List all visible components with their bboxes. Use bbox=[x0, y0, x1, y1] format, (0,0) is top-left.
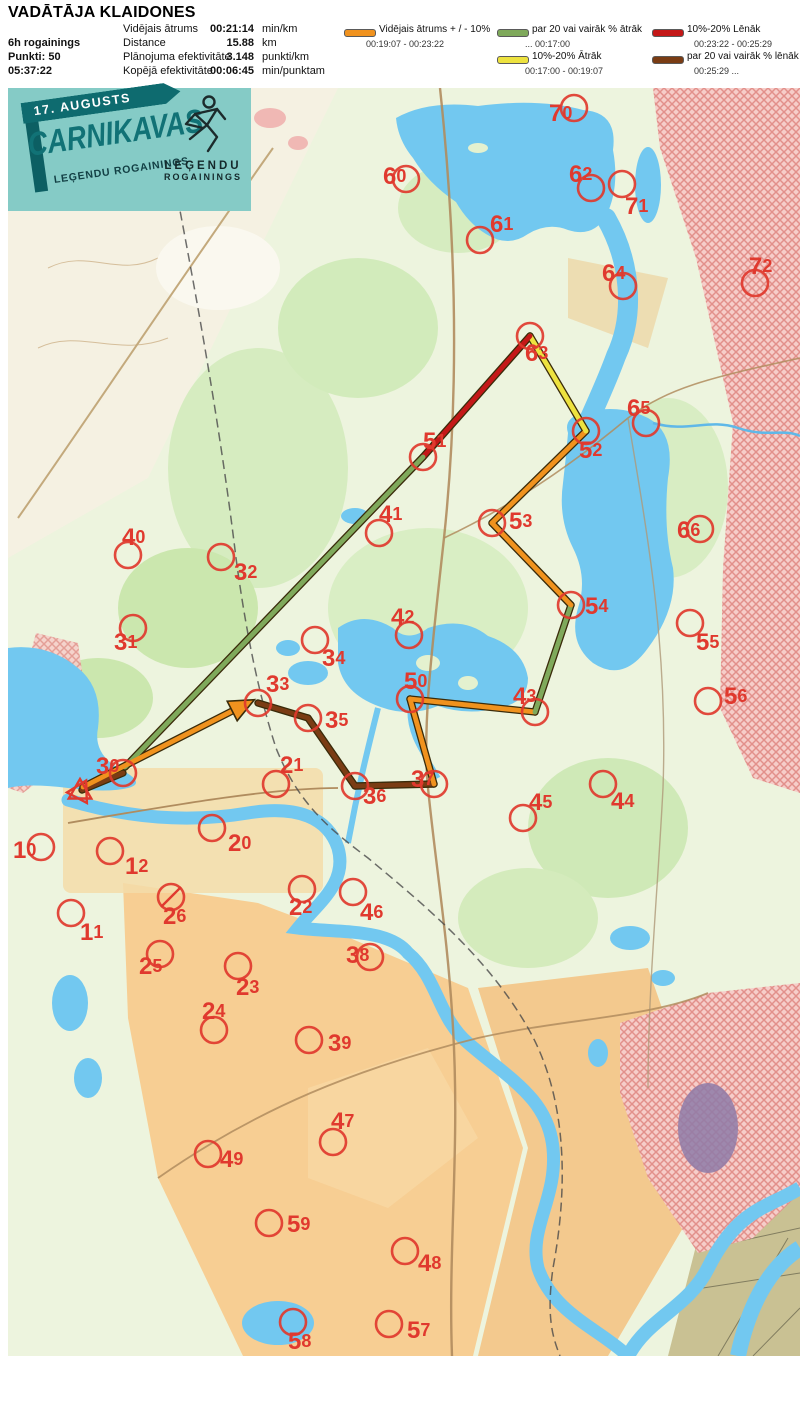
legend-swatch-fast10 bbox=[497, 56, 529, 64]
control-number-42: 42 bbox=[391, 604, 414, 631]
control-number-66: 66 bbox=[677, 517, 700, 544]
stat-unit-distance: km bbox=[262, 37, 342, 49]
control-number-23: 23 bbox=[236, 974, 259, 1001]
control-number-33: 33 bbox=[266, 671, 289, 698]
stat-value-plan-eff: 3.148 bbox=[186, 51, 254, 63]
control-number-20: 20 bbox=[228, 830, 251, 857]
stat-unit-total-eff: min/punktam bbox=[262, 65, 342, 77]
logo-emblem: LEĢENDU ROGAININGS bbox=[160, 94, 246, 182]
control-number-53: 53 bbox=[509, 508, 532, 535]
control-number-72: 72 bbox=[749, 253, 772, 280]
control-number-46: 46 bbox=[360, 899, 383, 926]
emblem-text-2: ROGAININGS bbox=[160, 172, 246, 182]
page: VADĀTĀJA KLAIDONES 6h rogainings Punkti:… bbox=[0, 0, 808, 1414]
total-time: 05:37:22 bbox=[8, 65, 118, 77]
legend-swatch-average bbox=[344, 29, 376, 37]
control-number-70: 70 bbox=[549, 100, 572, 127]
control-number-38: 38 bbox=[346, 942, 369, 969]
topographic-map: 1011122021222324252630313233343536373839… bbox=[8, 88, 800, 1356]
control-number-63: 63 bbox=[525, 340, 548, 367]
stat-value-total-eff: 00:06:45 bbox=[186, 65, 254, 77]
control-number-30: 30 bbox=[96, 753, 119, 780]
control-number-48: 48 bbox=[418, 1250, 441, 1277]
control-number-62: 62 bbox=[569, 161, 592, 188]
control-number-51: 51 bbox=[423, 428, 446, 455]
legend-swatch-slow10 bbox=[652, 29, 684, 37]
control-number-24: 24 bbox=[202, 998, 225, 1025]
control-number-55: 55 bbox=[696, 629, 719, 656]
emblem-text-1: LEĢENDU bbox=[160, 160, 246, 172]
control-number-54: 54 bbox=[585, 593, 608, 620]
control-number-65: 65 bbox=[627, 395, 650, 422]
stat-value-speed: 00:21:14 bbox=[186, 23, 254, 35]
control-number-71: 71 bbox=[625, 193, 648, 220]
control-number-44: 44 bbox=[611, 788, 634, 815]
control-number-50: 50 bbox=[404, 668, 427, 695]
control-number-57: 57 bbox=[407, 1317, 430, 1344]
control-number-10: 10 bbox=[13, 837, 36, 864]
control-number-12: 12 bbox=[125, 853, 148, 880]
runner-icon bbox=[167, 94, 239, 154]
points-total: Punkti: 50 bbox=[8, 51, 118, 63]
event-format: 6h rogainings bbox=[8, 37, 118, 49]
control-number-35: 35 bbox=[325, 707, 348, 734]
control-number-47: 47 bbox=[331, 1108, 354, 1135]
stat-value-distance: 15.88 bbox=[186, 37, 254, 49]
page-title: VADĀTĀJA KLAIDONES bbox=[8, 4, 196, 22]
control-number-40: 40 bbox=[122, 524, 145, 551]
stat-unit-plan-eff: punkti/km bbox=[262, 51, 342, 63]
control-number-61: 61 bbox=[490, 211, 513, 238]
control-number-49: 49 bbox=[220, 1146, 243, 1173]
control-number-41: 41 bbox=[379, 501, 402, 528]
control-number-45: 45 bbox=[529, 789, 552, 816]
control-number-26: 26 bbox=[163, 903, 186, 930]
control-number-58: 58 bbox=[288, 1328, 311, 1355]
control-number-39: 39 bbox=[328, 1030, 351, 1057]
stat-unit-speed: min/km bbox=[262, 23, 342, 35]
control-number-21: 21 bbox=[280, 752, 303, 779]
map-area: 1011122021222324252630313233343536373839… bbox=[8, 88, 800, 1356]
control-number-36: 36 bbox=[363, 783, 386, 810]
control-number-43: 43 bbox=[513, 683, 536, 710]
control-number-25: 25 bbox=[139, 953, 162, 980]
control-number-32: 32 bbox=[234, 559, 257, 586]
control-number-60: 60 bbox=[383, 163, 406, 190]
control-number-52: 52 bbox=[579, 437, 602, 464]
legend-swatch-fast20 bbox=[497, 29, 529, 37]
control-number-59: 59 bbox=[287, 1211, 310, 1238]
control-number-64: 64 bbox=[602, 260, 625, 287]
control-number-37: 37 bbox=[411, 766, 434, 793]
legend-swatch-slow20 bbox=[652, 56, 684, 64]
event-logo: 17. AUGUSTS CARNIKAVAS LEĢENDU ROGAINING… bbox=[8, 88, 251, 211]
control-number-56: 56 bbox=[724, 683, 747, 710]
control-number-11: 11 bbox=[80, 919, 103, 946]
control-number-34: 34 bbox=[322, 645, 345, 672]
control-number-22: 22 bbox=[289, 894, 312, 921]
control-number-31: 31 bbox=[114, 629, 137, 656]
